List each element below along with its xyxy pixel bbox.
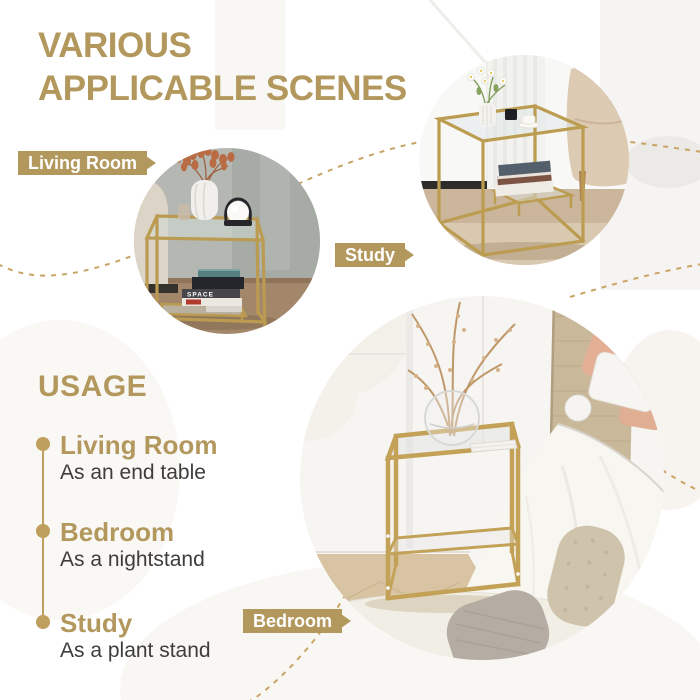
study-photo-circle [419,55,629,265]
usage-item-desc-study: As a plant stand [60,639,211,663]
candle-holder [178,204,190,220]
speaker-graphic [505,109,517,120]
bed-knob [565,395,591,421]
tag-arrow-icon [404,248,414,262]
bedroom-tag: Bedroom [243,609,342,633]
usage-section-title: USAGE [38,370,147,404]
usage-item-desc-bedroom: As a nightstand [60,548,205,572]
living-room-tag-label: Living Room [28,153,137,173]
usage-item-title-bedroom: Bedroom [60,517,174,548]
books-graphic [493,161,553,197]
book-spine-text: SPACE [187,292,214,299]
scene-infographic: VARIOUS APPLICABLE SCENES [0,0,700,700]
bullet-dot-icon [36,437,50,451]
bullet-dot-icon [36,615,50,629]
usage-item-desc-living-room: As an end table [60,461,206,485]
title-line-1: VARIOUS [38,26,191,65]
bedroom-photo-circle [300,296,664,660]
lantern-lamp-graphic [224,199,252,226]
usage-item-title-study: Study [60,608,132,639]
page-title: VARIOUS APPLICABLE SCENES [38,24,407,110]
study-tag: Study [335,243,405,267]
tag-arrow-icon [146,156,156,170]
title-line-2: APPLICABLE SCENES [38,69,407,108]
baseboard [419,181,487,189]
bedroom-scene-illustration [300,296,664,660]
tag-arrow-icon [341,614,351,628]
living-room-photo-circle: SPACE [134,148,320,334]
usage-item-title-living-room: Living Room [60,430,217,461]
bullet-dot-icon [36,524,50,538]
study-scene-illustration [419,55,629,265]
living-room-tag: Living Room [18,151,147,175]
study-tag-label: Study [345,245,395,265]
living-room-scene-illustration: SPACE [134,148,320,334]
bedroom-tag-label: Bedroom [253,611,332,631]
